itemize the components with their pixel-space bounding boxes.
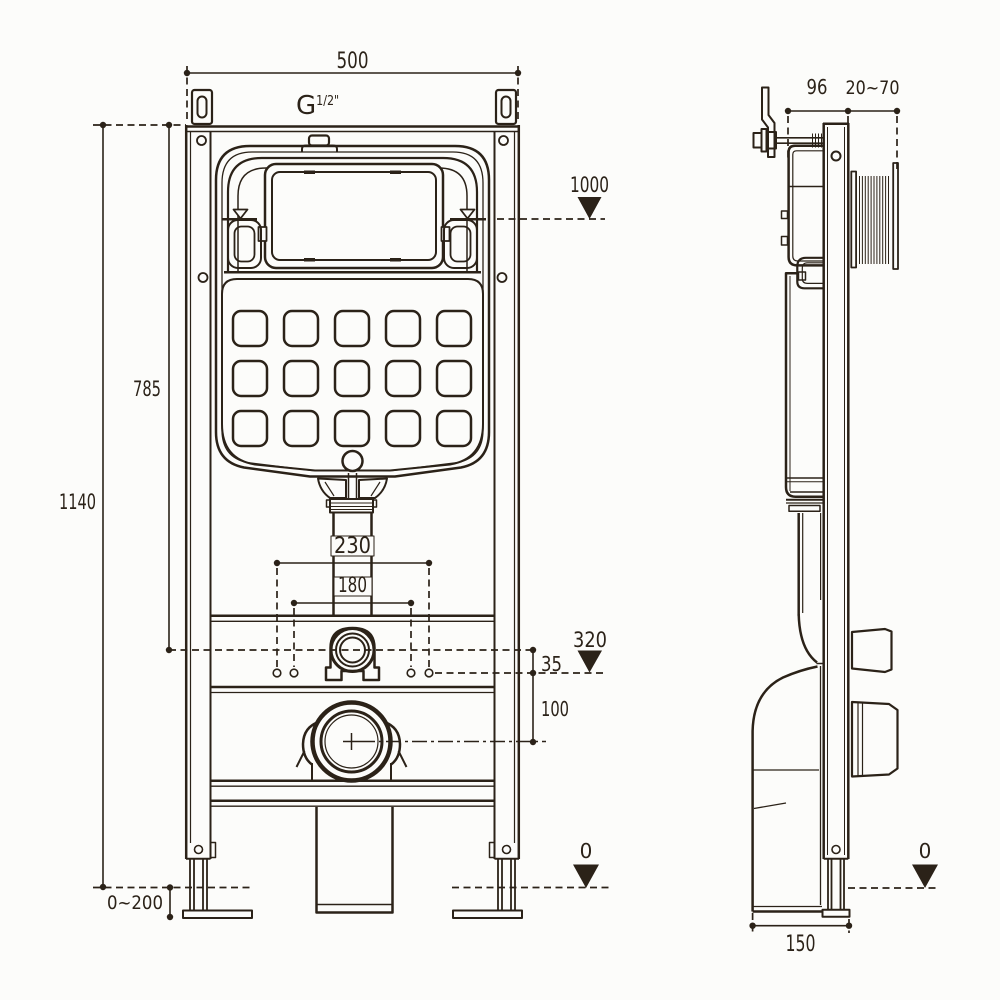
grid-cell [437,361,471,396]
flush-pipe [334,513,372,617]
inspection-window [259,164,450,268]
extension-lines [187,66,518,122]
elbow-seam-diagonal [754,803,786,809]
leg-pin-hole [832,846,840,854]
foot-plate [453,911,522,919]
dim-base-depth-label: 150 [786,932,816,957]
window-clip [390,258,401,262]
dim-dot [291,600,297,606]
dim-dot [749,923,755,929]
dim-dot [166,122,172,128]
tank-inner [793,151,823,261]
flush-button-port [343,451,363,471]
floor-level-label: 0 [580,839,593,863]
dim-valve-axis-label: 785 [133,377,161,401]
pipe-coupling [330,499,373,513]
drain-chute [317,807,393,913]
dim-wall-range-label: 20~70 [846,77,900,99]
hatch-lines [860,176,889,264]
grid-cell [233,311,267,346]
grid-cell [386,361,420,396]
dim-drain-axis-label: 100 [541,697,569,721]
grid-cell [284,361,318,396]
dim-pipe-clearance-label: 230 [334,534,371,559]
wall-face-max [893,163,898,269]
coupling-band [789,506,820,512]
grid-cell [335,361,369,396]
window-outer [265,164,443,268]
dim-dot [274,560,280,566]
chute-outline [317,807,393,913]
leg-tube [828,859,844,910]
mounting-tabs [192,90,516,124]
dim-dot [408,600,414,606]
datum-0-front: 0 [573,839,599,888]
leg-side [823,846,850,917]
pipe-bend [799,614,817,663]
grid-cell [386,311,420,346]
leg-pin-hole [195,846,203,854]
dim-dot [167,884,173,890]
valve-wing [318,479,346,499]
member-accents [828,127,845,855]
grid-cell [437,411,471,446]
housing-joints [786,478,823,492]
water-inlet-boss [309,136,329,146]
window-clip [304,258,315,262]
dim-35: 35 [530,647,562,676]
frame-hole [199,273,208,282]
mounting-tab [496,90,516,124]
thread-sup: 1/2" [316,94,339,109]
dim-base-150: 150 [749,913,852,957]
grid-cell [386,411,420,446]
stub-outline [852,702,898,777]
flush-pipe-side [786,500,823,664]
dim-dot [845,108,851,114]
leg-pin-hole [503,846,511,854]
tank-lug [782,211,788,219]
anchor-hole [407,669,415,677]
grid-cell [233,361,267,396]
mounting-tab [192,90,212,124]
drain-elbow [753,666,823,912]
panel-outline [222,279,483,471]
coupling-ribs [331,503,372,510]
center-cross-icon [343,733,360,750]
datum-triangle-icon [573,865,599,889]
frame-hole [197,136,206,145]
grid-cell [233,411,267,446]
legs [183,843,522,919]
dim-height-785: 785 [133,122,172,653]
water-level-icon [461,210,475,219]
leg-clip [211,843,216,858]
window-clip [304,171,315,175]
dim-230: 230 [274,534,432,667]
bolt-head [754,133,762,148]
foot-plate [823,910,850,917]
pipe-inner-edges [803,513,821,613]
frame-hole [499,136,508,145]
mounting-slot [502,97,511,118]
coupling-nub [373,500,377,507]
dim-dot [846,923,852,929]
water-level-icon [234,210,248,219]
valve-wing [359,479,387,499]
dim-frame-depth-label: 96 [807,75,828,99]
front-view: 500 G1/2" 1140 785 [59,49,612,920]
dim-leg-adjust: 0~200 [107,884,173,920]
flush-housing-side [786,272,823,497]
window-side-tab [442,227,450,241]
installation-drawing-page: 500 G1/2" 1140 785 [0,0,1000,1000]
dim-leg-adjustment-label: 0~200 [107,892,163,914]
leg-tube [190,859,207,911]
drain-outlet-stub [852,702,898,777]
dim-dot [167,914,173,920]
wall-bracket [762,88,775,158]
dim-dot [100,122,106,128]
housing-outline [786,273,823,496]
stub-flange [858,703,863,777]
dim-100: 100 [530,673,569,745]
foot-plate [183,911,252,919]
grid-cell [437,311,471,346]
dim-180: 180 [291,573,414,667]
tank-outer [789,146,823,266]
frame-member [823,123,849,859]
coupling-nub [327,500,331,507]
grid-panel [222,279,483,471]
frame-hole [498,273,507,282]
flush-outlet-stub [852,629,892,672]
wall-hung-frame-technical-drawing: 500 G1/2" 1140 785 [0,0,1000,1000]
window-side-tab [259,227,267,241]
flush-bend-side [797,258,823,289]
drain-coupling [297,703,547,782]
dim-height-1140: 1140 [59,122,186,890]
wall-hatch [851,163,898,269]
floor-level-label: 0 [919,839,932,863]
datum-320: 320 [573,628,607,673]
window-clip [390,171,401,175]
thread-size-label: G1/2" [296,91,339,121]
grid-cell [284,311,318,346]
dim-width-500: 500 [184,49,521,122]
datum-triangle-icon [912,865,938,889]
grid-cell [335,411,369,446]
grid-cell [284,411,318,446]
tank-lug [782,237,788,246]
mounting-slot [198,97,207,118]
member-hole [832,152,841,161]
elbow-outer [753,667,818,912]
dim-width-label: 500 [337,49,369,74]
datum-triangle-icon [578,197,602,219]
cistern-tank-side [782,146,824,266]
dim-dot [894,108,900,114]
leg-tube [498,859,515,911]
anchor-hole [290,669,298,677]
anchor-hole [273,669,281,677]
leg-clip [490,843,495,858]
wall-face-min [851,172,856,268]
anchor-hole [425,669,433,677]
datum-0-side: 0 [848,839,940,888]
dim-total-height-label: 1140 [59,490,96,514]
dim-outlet-level-label: 320 [573,628,607,652]
dim-dot [530,647,536,653]
datum-triangle-icon [578,651,603,673]
dim-water-level-label: 1000 [570,173,609,197]
dim-dot [785,108,791,114]
thread-prefix: G [296,91,316,121]
side-view: 96 20~70 [749,75,940,957]
dim-dot [426,560,432,566]
grid-cell [335,311,369,346]
datum-1000: 1000 [570,173,609,219]
dim-fixing-centers-label: 180 [338,573,367,597]
dim-offset-label: 35 [541,652,562,676]
inlet-fitting [326,628,379,680]
